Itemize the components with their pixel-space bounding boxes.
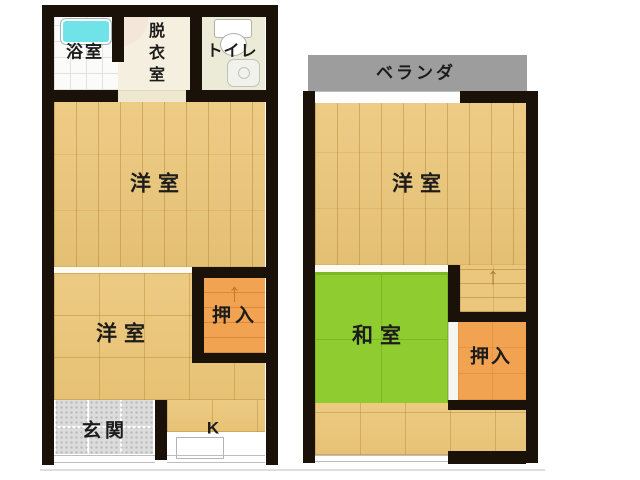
wall-stairs1-bottom (192, 353, 266, 363)
drain-circle-icon (238, 67, 250, 79)
room2-label: 洋室 (392, 174, 448, 195)
floorplan-canvas: ↑ 浴室 脱衣室 トイレ 洋室 押入 洋室 玄関 K (0, 0, 640, 480)
stairs-up-arrow-icon: ↑ (228, 279, 241, 305)
dressing-room-label: 脱衣室 (147, 21, 167, 87)
balcony-label: ベランダ (376, 65, 456, 82)
wall-1f-top (42, 5, 278, 17)
kitchen-label: K (207, 420, 219, 437)
wall-2f-right (526, 91, 538, 463)
wall-stairs2-bottom (448, 312, 526, 322)
wall-1f-right (266, 5, 278, 465)
wall-sanitary-bottom-right (186, 90, 278, 102)
closet-1f-label: 押入 (212, 307, 258, 326)
room1-large-label: 洋室 (130, 174, 186, 195)
kitchen-window-line (167, 455, 265, 463)
wall-sanitary-bottom-left (42, 90, 118, 102)
hallway-2f-floor (315, 403, 526, 455)
room1-small-label: 洋室 (96, 324, 152, 345)
wall-2f-bottom-right (448, 451, 526, 464)
wall-entrance-right (155, 400, 167, 460)
staircase-2f: ↑ (460, 265, 526, 312)
ground-shadow-line (40, 469, 545, 471)
wall-bath-right (112, 17, 124, 62)
wall-1f-left (42, 5, 54, 465)
bathtub-icon (61, 19, 111, 44)
wall-dressing-right (190, 17, 202, 90)
closet-2f-label: 押入 (470, 348, 512, 367)
stairs2-up-arrow-icon: ↑ (487, 265, 499, 289)
wall-stairs1-left (192, 267, 204, 363)
wall-stairs2-left (448, 265, 460, 315)
toilet-mat-icon (227, 59, 260, 87)
toilet-label: トイレ (206, 44, 257, 60)
bathroom-label: 浴室 (66, 44, 104, 61)
tatami-room-label: 和室 (352, 326, 408, 347)
entrance-door-line (54, 455, 155, 463)
hallway-window-line (315, 455, 448, 462)
wall-2f-left (303, 91, 315, 463)
tatami-sliding-line (315, 265, 448, 272)
entrance-label: 玄関 (82, 422, 128, 441)
wall-closet2-bottom (448, 400, 526, 410)
